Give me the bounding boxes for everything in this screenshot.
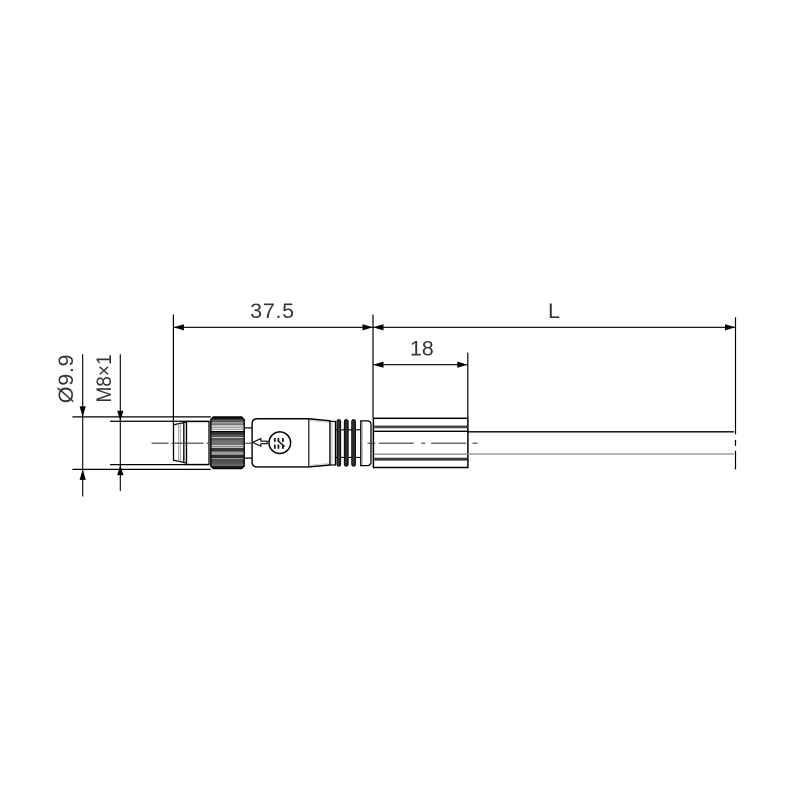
svg-text:Ø9.9: Ø9.9: [54, 354, 78, 403]
svg-text:18: 18: [410, 337, 434, 361]
svg-text:L: L: [548, 299, 560, 323]
svg-text:37.5: 37.5: [250, 299, 295, 323]
svg-text:M8×1: M8×1: [92, 355, 116, 403]
